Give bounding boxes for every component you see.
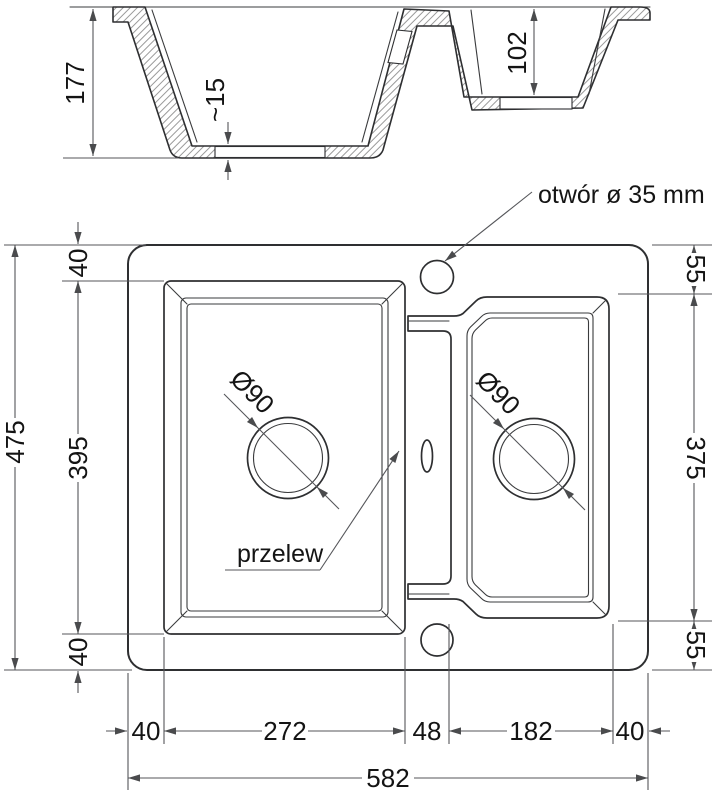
faucet-hole-label: otwór ø 35 mm (538, 181, 705, 209)
dim-label-55-bottom: 55 (681, 631, 711, 660)
left-basin-outer-edge (164, 281, 405, 634)
left-basin-corner-miter (382, 611, 402, 631)
dim-label-40-margin-left: 40 (132, 716, 161, 746)
dim-label-55-top: 55 (681, 255, 711, 284)
overflow-callout: przelew (225, 451, 399, 570)
dim-label-375: 375 (681, 436, 711, 479)
dim-label-395: 395 (63, 436, 93, 479)
left-basin (164, 281, 405, 634)
dim-label-40-margin-right: 40 (616, 716, 645, 746)
faucet-hole-circle (421, 261, 454, 294)
dim-label-102: 102 (502, 31, 532, 74)
sink-technical-drawing: 177 102 ~15 (0, 0, 715, 800)
dim-label-582: 582 (366, 763, 409, 793)
overflow-label: przelew (237, 540, 324, 568)
faucet-hole-callout: otwór ø 35 mm (445, 181, 705, 261)
dim-label-15: ~15 (200, 78, 230, 122)
section-shell (113, 7, 650, 158)
bottom-dimensions: 40 272 48 182 40 582 (106, 624, 670, 793)
dim-label-177: 177 (60, 61, 90, 104)
right-basin-corner-miter (593, 602, 605, 614)
right-basin (408, 297, 609, 618)
dim-label-d90-left: Ø90 (224, 364, 280, 420)
bottom-hole-circle (421, 624, 453, 656)
overflow-hole-ellipse (422, 440, 433, 472)
left-basin-corner-miter (167, 284, 187, 304)
left-dimensions: 475 40 395 40 (0, 222, 164, 693)
right-basin-corner-miter (593, 301, 605, 313)
left-basin-corner-miter (382, 284, 402, 304)
left-basin-corner-miter (167, 611, 187, 631)
dim-small-basin-depth: 102 (502, 9, 534, 95)
dim-label-40-top-left: 40 (63, 249, 93, 278)
drawing-canvas: 177 102 ~15 (0, 0, 715, 800)
left-basin-bevel-line (181, 298, 388, 617)
dim-label-40-bottom-left: 40 (63, 638, 93, 667)
section-bevel-line (471, 10, 482, 94)
dim-label-48: 48 (413, 716, 442, 746)
dim-label-475: 475 (0, 420, 30, 463)
dim-floor-thickness: ~15 (200, 78, 230, 180)
plan-view: otwór ø 35 mm przelew Ø90 Ø90 (128, 181, 705, 670)
dim-label-182: 182 (509, 716, 552, 746)
right-dimensions: 55 375 55 (618, 245, 712, 670)
dim-label-d90-right: Ø90 (470, 365, 526, 421)
dim-label-272: 272 (263, 716, 306, 746)
right-drain-recess (500, 98, 572, 110)
right-basin-outer-edge (408, 297, 609, 618)
cross-section-view: 177 102 ~15 (60, 7, 650, 180)
right-basin-inner-edge (472, 318, 589, 597)
left-drain-recess (215, 147, 325, 158)
